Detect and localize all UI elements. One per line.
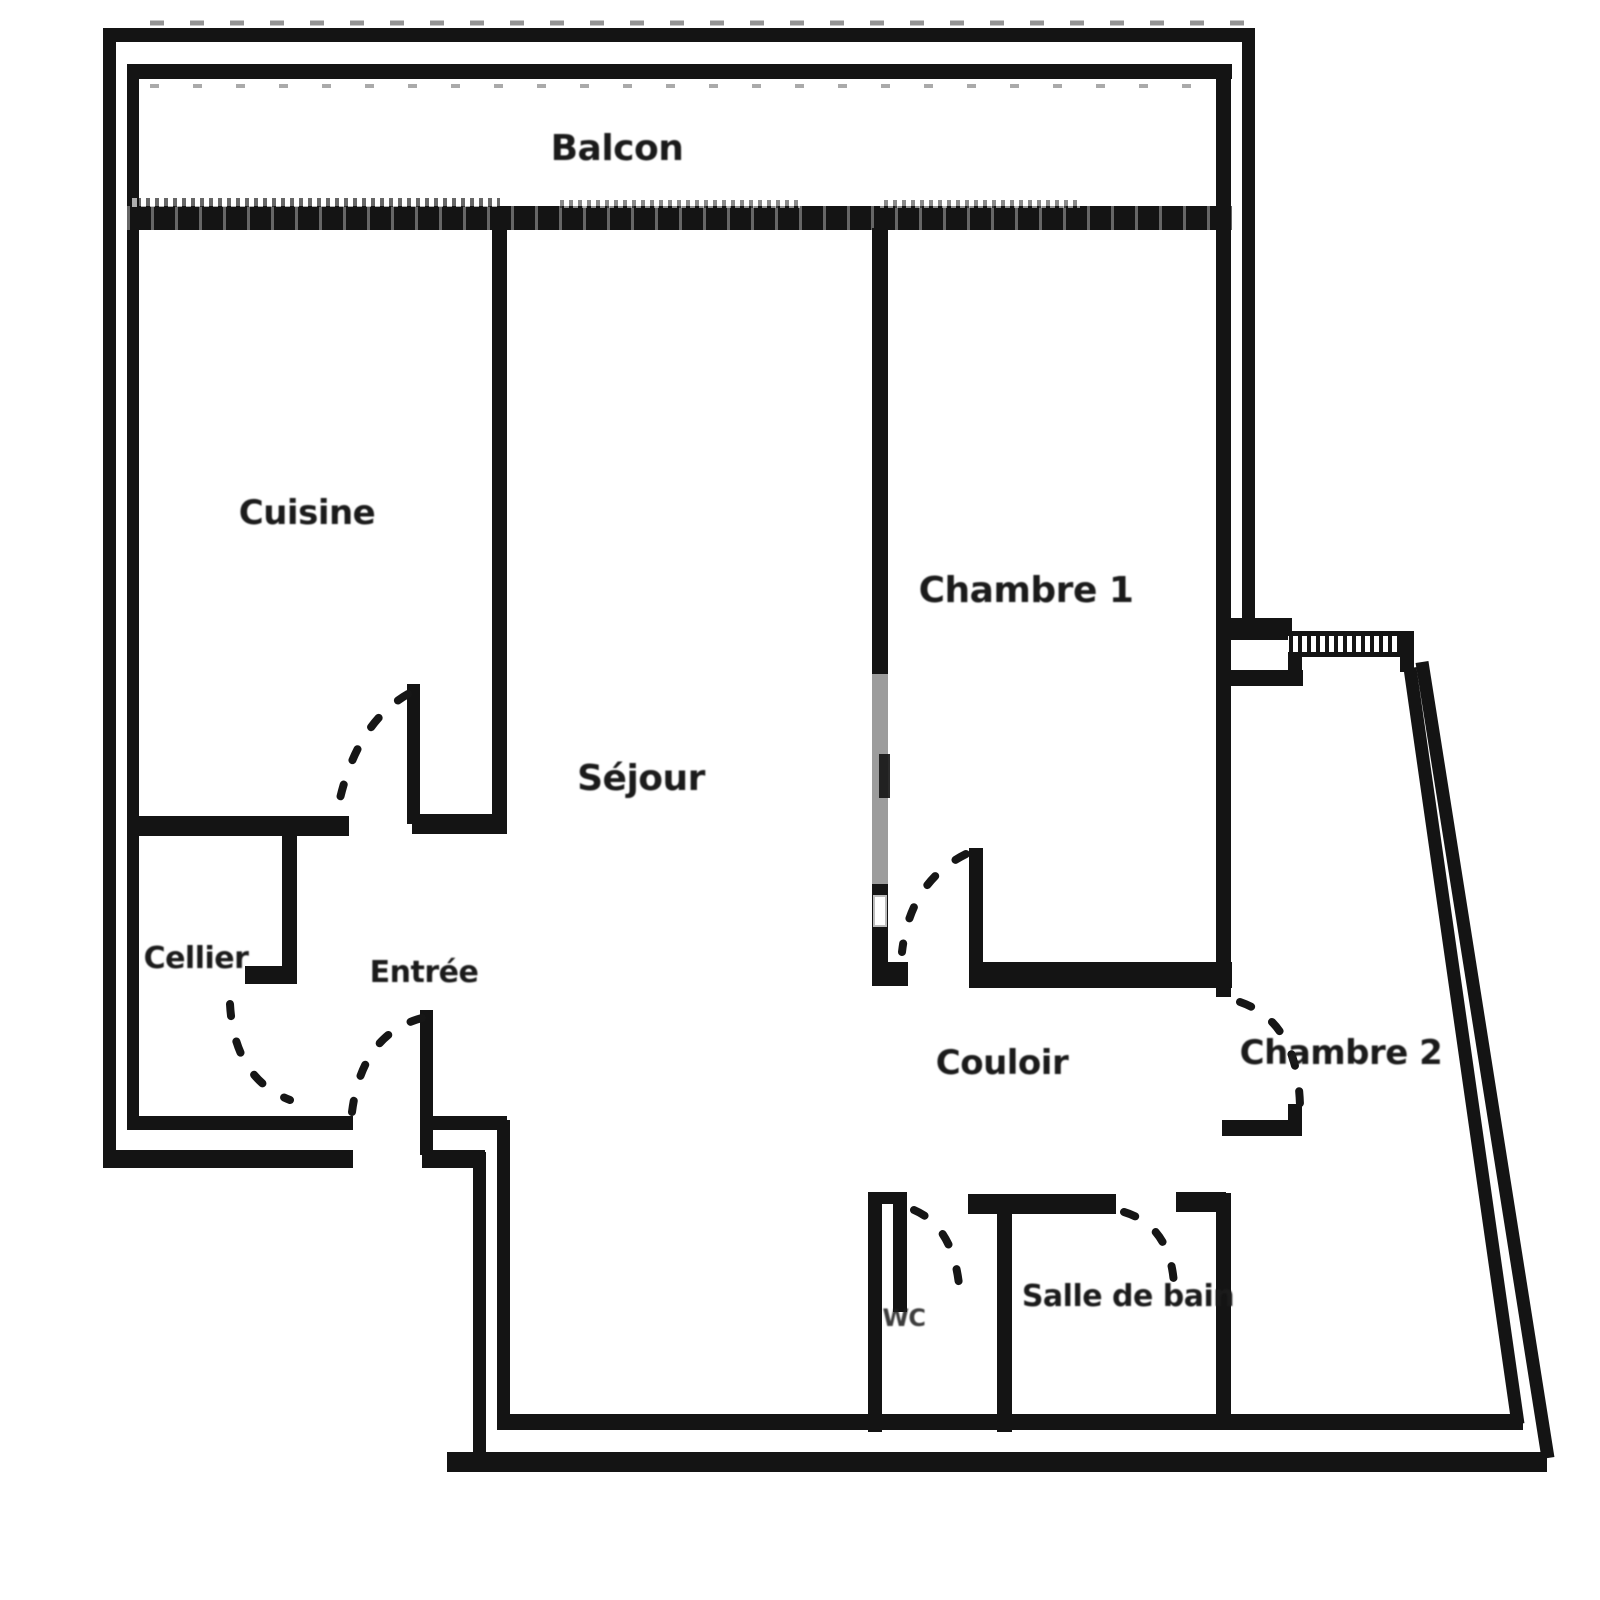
wall-bathroom-top	[968, 1194, 1116, 1214]
wall-entry-bottom-inner-right	[422, 1116, 507, 1130]
wall-right-outer	[1242, 28, 1255, 632]
wall-right-inner	[1216, 64, 1231, 997]
wall-left-outer	[103, 28, 116, 1168]
wall-step-outer	[473, 1152, 486, 1472]
wall-living-bedroom1-jamb-mark	[879, 754, 890, 798]
room-label-cellier: Cellier	[144, 941, 250, 976]
wall-entry-bottom-inner-left	[127, 1116, 353, 1130]
wall-entry-bottom-outer-left	[103, 1150, 353, 1168]
window-hatch-band	[1288, 634, 1414, 654]
wall-living-bedroom1-top	[872, 228, 888, 674]
wall-extension-return-stub	[1288, 652, 1302, 672]
room-label-cuisine: Cuisine	[239, 493, 375, 533]
wall-cellier-foot	[245, 966, 297, 984]
door-leaf-bedroom2	[1222, 1120, 1302, 1136]
wall-extension-return	[1228, 670, 1303, 686]
scan-artifact-box	[874, 896, 886, 926]
window-band-bottom-line	[1288, 652, 1414, 657]
wall-living-bedroom1-foot	[872, 962, 908, 986]
room-label-balcon: Balcon	[551, 128, 684, 169]
door-leaf-front	[420, 1010, 433, 1155]
wall-cellier-right	[282, 834, 297, 984]
wall-top-outer	[103, 28, 1255, 42]
room-label-chambre-2: Chambre 2	[1240, 1033, 1443, 1073]
wall-step-inner	[497, 1120, 510, 1430]
wall-extension-top	[1230, 618, 1292, 640]
room-label-sejour: Séjour	[577, 758, 706, 799]
floor-plan-drawing: Balcon Cuisine Séjour Chambre 1 Cellier …	[0, 0, 1600, 1600]
wall-bottom-inner	[503, 1414, 1523, 1430]
scanned-floor-plan: Balcon Cuisine Séjour Chambre 1 Cellier …	[0, 0, 1600, 1600]
door-leaf-kitchen	[407, 684, 420, 824]
balcony-glazing-texture	[127, 206, 1232, 230]
wall-kitchen-bottom-right	[412, 814, 507, 834]
wall-kitchen-living	[492, 228, 507, 834]
room-label-wc: WC	[882, 1304, 925, 1332]
window-band-top-line	[1288, 631, 1414, 636]
wall-bottom-outer	[447, 1452, 1547, 1472]
wall-wc-left	[868, 1192, 882, 1432]
room-label-couloir: Couloir	[936, 1043, 1069, 1083]
wall-top-inner	[127, 64, 1232, 79]
room-label-salle-de-bain: Salle de bain	[1022, 1279, 1234, 1314]
wall-bedroom1-bottom	[969, 962, 1232, 988]
room-label-entree: Entrée	[370, 955, 479, 990]
wall-extension-corner	[1400, 634, 1414, 672]
wall-bathroom-top-right	[1176, 1192, 1226, 1212]
door-leaf-bedroom1	[969, 848, 983, 970]
balcony-window-hatch-2	[560, 200, 800, 208]
wall-bathroom-left	[997, 1196, 1012, 1432]
wall-kitchen-bottom-left	[127, 816, 349, 836]
paper-background	[0, 0, 1600, 1600]
door-leaf-wc	[893, 1196, 907, 1312]
balcony-facade	[127, 198, 1232, 230]
room-label-chambre-1: Chambre 1	[919, 570, 1134, 611]
balcony-window-hatch-3	[880, 200, 1080, 208]
balcony-window-hatch-1	[132, 198, 500, 207]
